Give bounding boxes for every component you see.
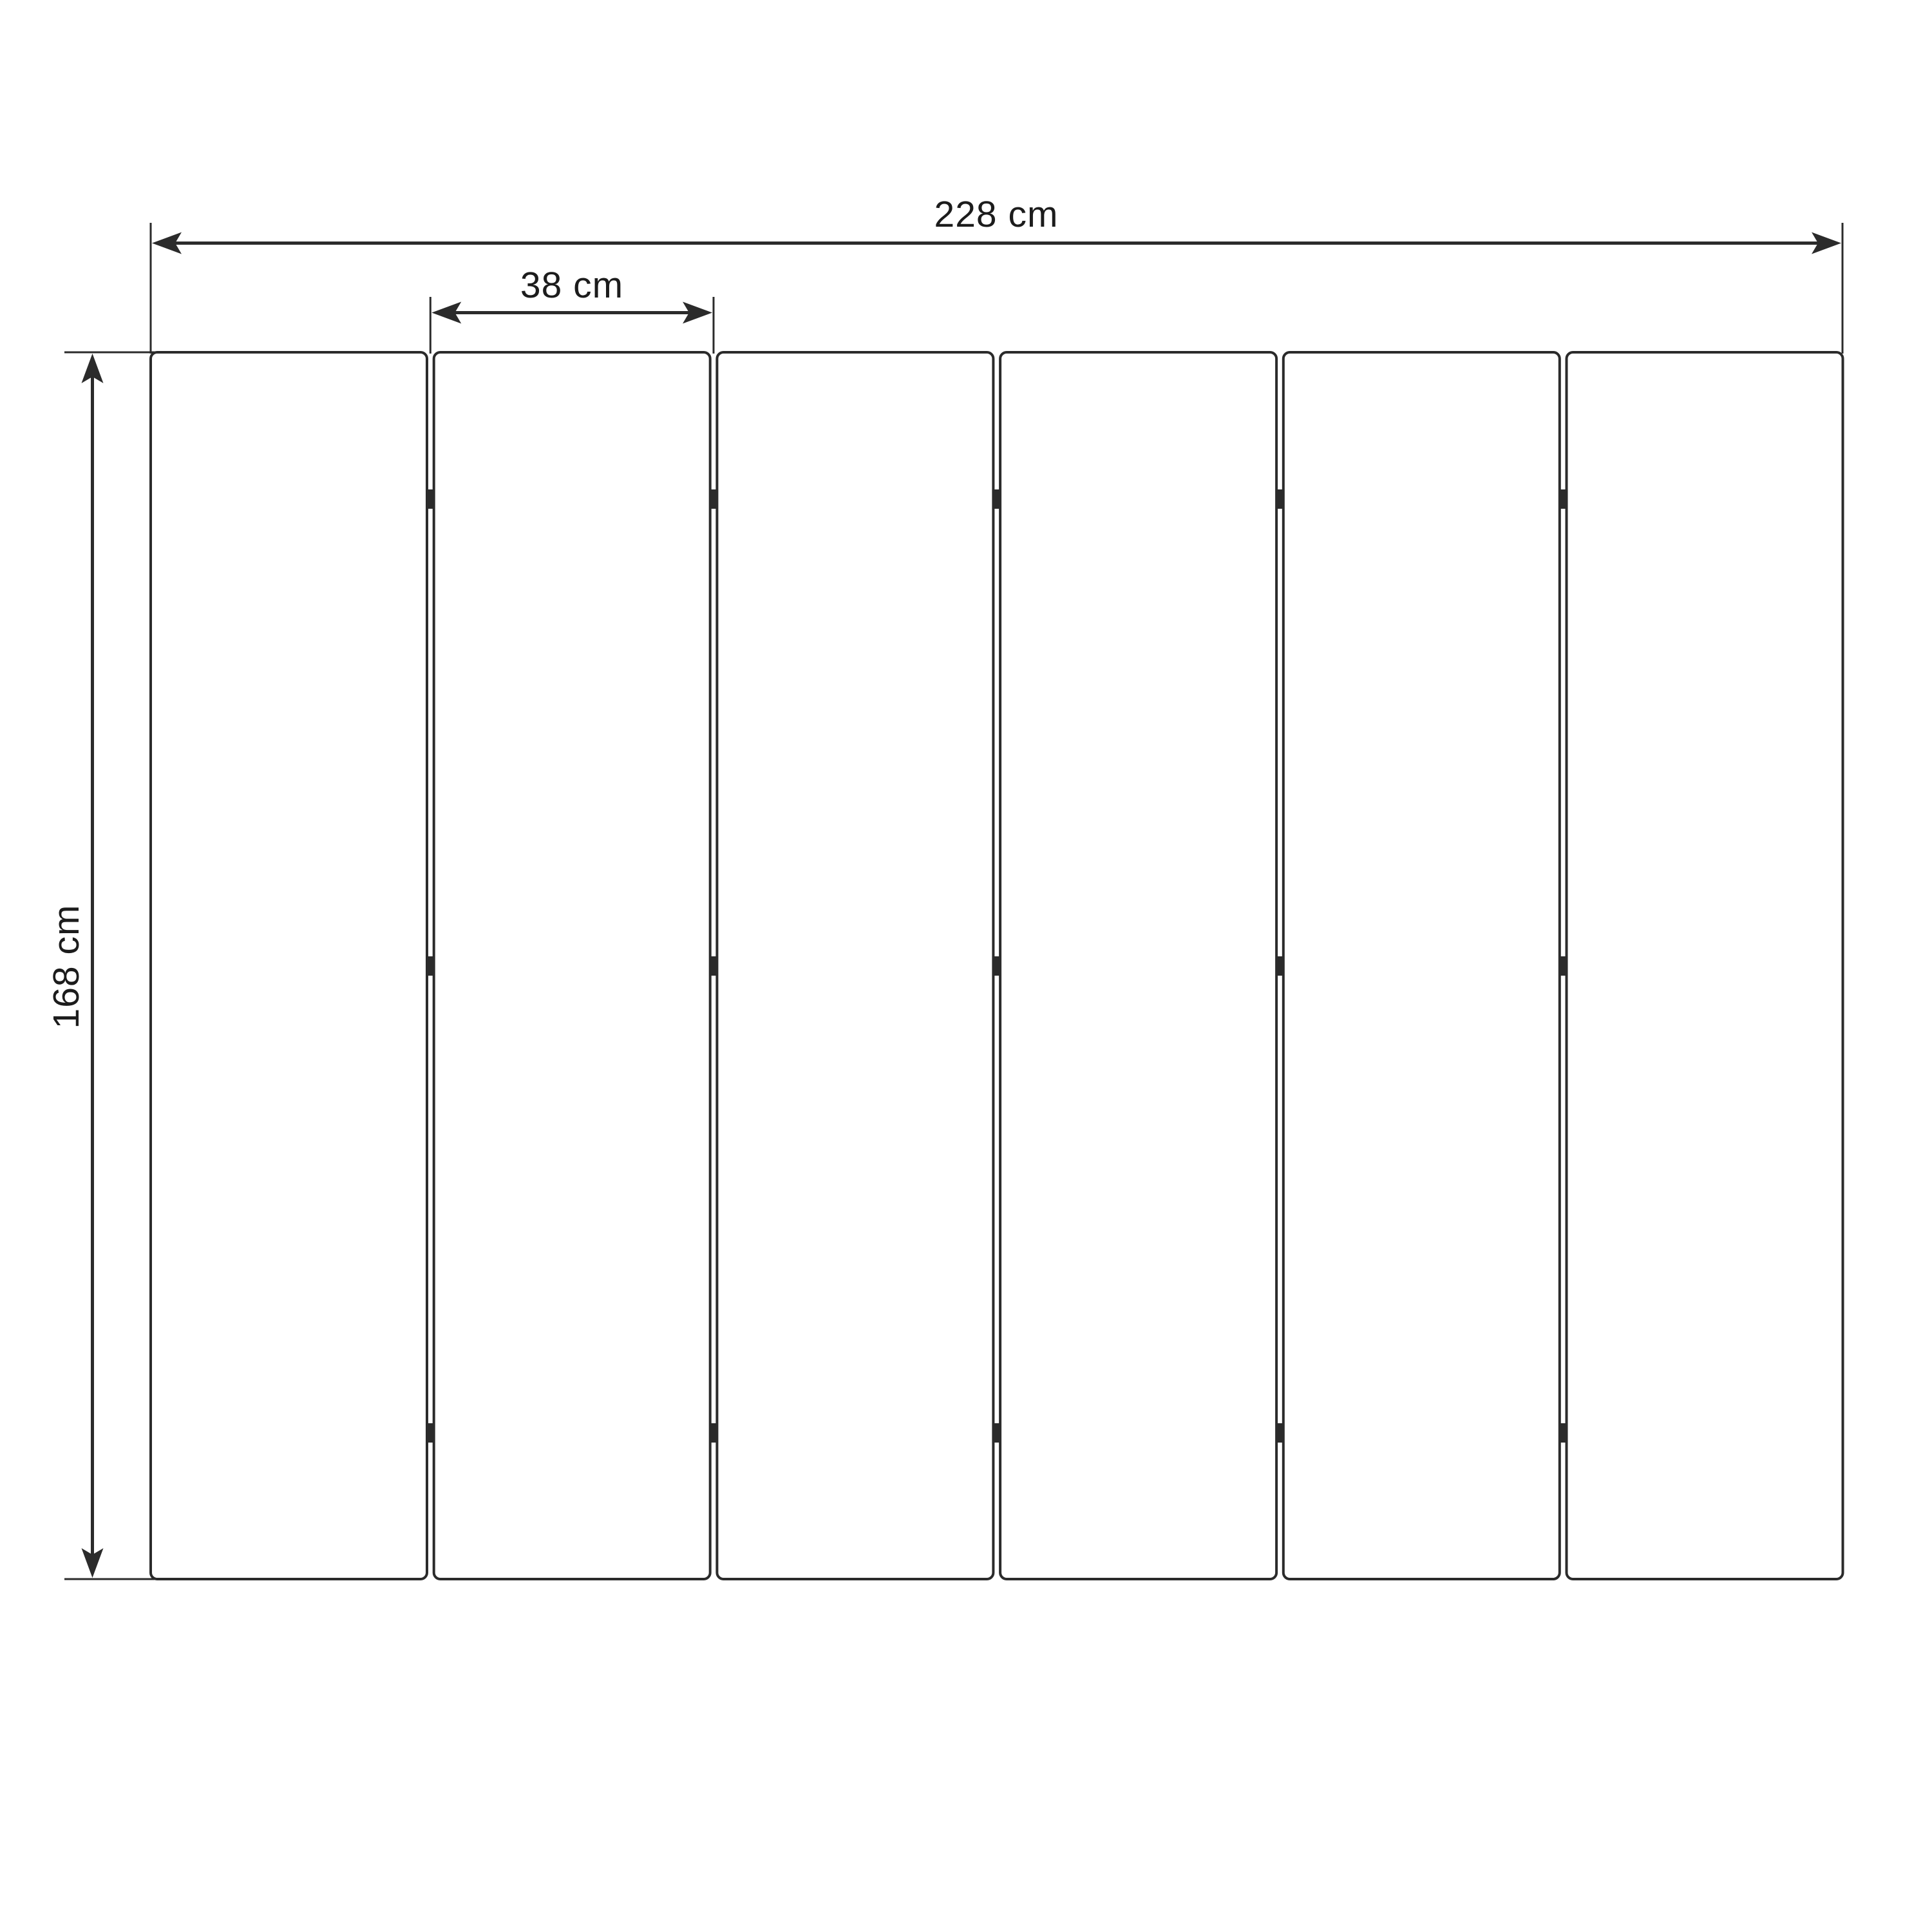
hinge bbox=[1276, 956, 1285, 976]
hinge bbox=[1558, 1423, 1567, 1443]
dimension-total-width: 228 cm bbox=[151, 194, 1842, 354]
hinge bbox=[709, 956, 718, 976]
hinge bbox=[1276, 489, 1285, 509]
panel-5 bbox=[1283, 352, 1560, 1579]
panel-1 bbox=[151, 352, 427, 1579]
hinge bbox=[709, 1423, 718, 1443]
panel-dimension-drawing: 228 cm 38 cm 168 cm bbox=[0, 0, 1932, 1932]
hinge bbox=[992, 956, 1001, 976]
dimension-height: 168 cm bbox=[46, 352, 155, 1579]
hinge bbox=[709, 489, 718, 509]
hinge bbox=[1558, 489, 1567, 509]
hinge bbox=[426, 489, 435, 509]
hinge bbox=[1276, 1423, 1285, 1443]
height-label: 168 cm bbox=[46, 905, 87, 1029]
hinge bbox=[992, 489, 1001, 509]
hinge bbox=[992, 1423, 1001, 1443]
hinge bbox=[1558, 956, 1567, 976]
hinge bbox=[426, 1423, 435, 1443]
panel-width-label: 38 cm bbox=[520, 265, 623, 306]
total-width-label: 228 cm bbox=[934, 194, 1059, 235]
panel-2 bbox=[434, 352, 710, 1579]
dimension-panel-width: 38 cm bbox=[430, 265, 714, 354]
diagram-canvas: 228 cm 38 cm 168 cm bbox=[0, 0, 1932, 1932]
panel-4 bbox=[1000, 352, 1276, 1579]
panel-3 bbox=[717, 352, 993, 1579]
panel-6 bbox=[1567, 352, 1843, 1579]
hinge bbox=[426, 956, 435, 976]
